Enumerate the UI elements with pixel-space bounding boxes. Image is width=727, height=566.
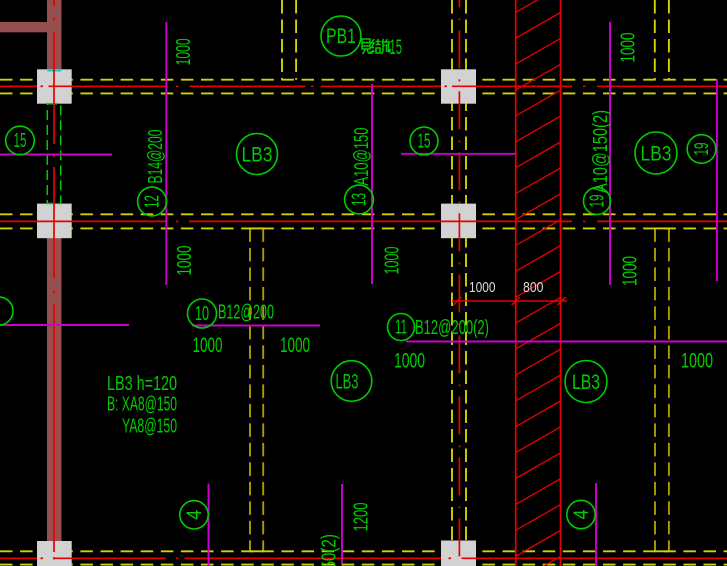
svg-text:LB3: LB3 <box>336 370 359 394</box>
svg-text:YA8@150: YA8@150 <box>122 415 177 438</box>
svg-text:150(2): 150(2) <box>319 534 341 566</box>
svg-text:4: 4 <box>570 509 593 519</box>
svg-text:PB1: PB1 <box>326 25 356 48</box>
svg-text:B12@200: B12@200 <box>218 301 274 324</box>
svg-text:1200: 1200 <box>351 503 373 532</box>
svg-text:A10@150(2): A10@150(2) <box>590 110 612 193</box>
svg-text:1000: 1000 <box>469 279 496 296</box>
svg-text:A10@150: A10@150 <box>351 128 373 186</box>
svg-text:12: 12 <box>142 195 164 208</box>
svg-text:1000: 1000 <box>681 350 713 373</box>
svg-text:15: 15 <box>418 131 431 153</box>
svg-text:10: 10 <box>195 303 209 325</box>
svg-text:1000: 1000 <box>174 246 196 276</box>
svg-text:LB3: LB3 <box>641 142 672 166</box>
svg-text:1000: 1000 <box>280 334 310 357</box>
svg-text:4: 4 <box>183 510 206 520</box>
svg-text:1000: 1000 <box>193 334 223 357</box>
svg-text:LB3: LB3 <box>242 143 273 167</box>
svg-text:B12@200(2): B12@200(2) <box>415 316 489 339</box>
svg-text:15: 15 <box>14 130 27 152</box>
svg-text:LB3: LB3 <box>572 370 600 394</box>
svg-text:19: 19 <box>691 143 713 156</box>
svg-text:B14@200: B14@200 <box>145 130 167 184</box>
svg-text:11: 11 <box>395 317 407 339</box>
svg-text:1000: 1000 <box>618 33 640 63</box>
svg-text:1000: 1000 <box>382 247 404 275</box>
svg-text:800: 800 <box>523 279 544 296</box>
svg-text:15: 15 <box>390 36 403 59</box>
svg-text:13: 13 <box>349 193 371 206</box>
svg-text:1000: 1000 <box>173 38 195 65</box>
svg-text:B: XA8@150: B: XA8@150 <box>107 393 177 416</box>
svg-text:19: 19 <box>587 195 609 208</box>
svg-text:1000: 1000 <box>394 350 425 373</box>
svg-text:1000: 1000 <box>620 256 642 286</box>
